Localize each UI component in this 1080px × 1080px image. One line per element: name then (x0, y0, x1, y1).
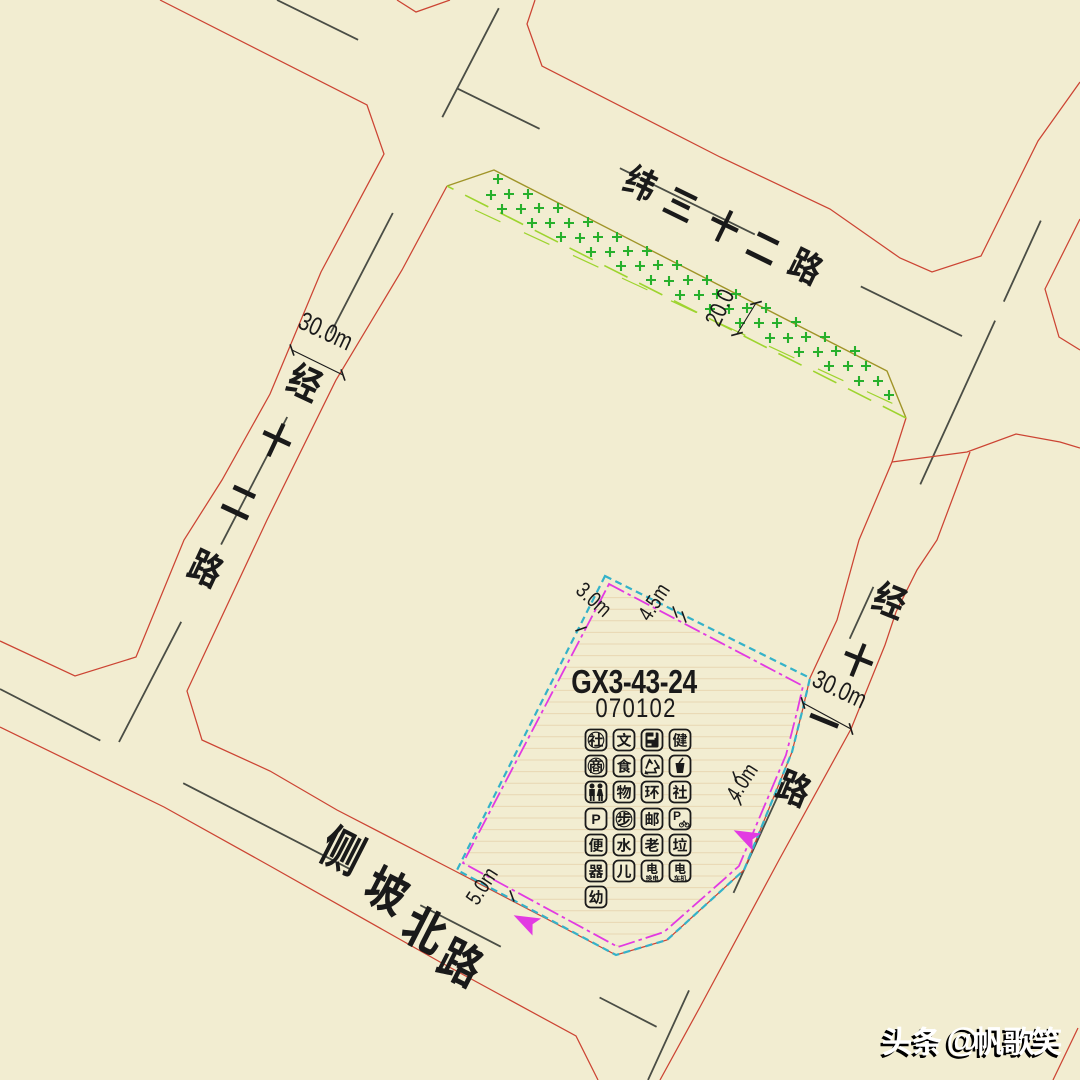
svg-text:070102: 070102 (595, 694, 676, 724)
svg-text:P: P (673, 809, 681, 823)
svg-text:@: @ (946, 1021, 978, 1058)
svg-text:P: P (591, 811, 600, 827)
